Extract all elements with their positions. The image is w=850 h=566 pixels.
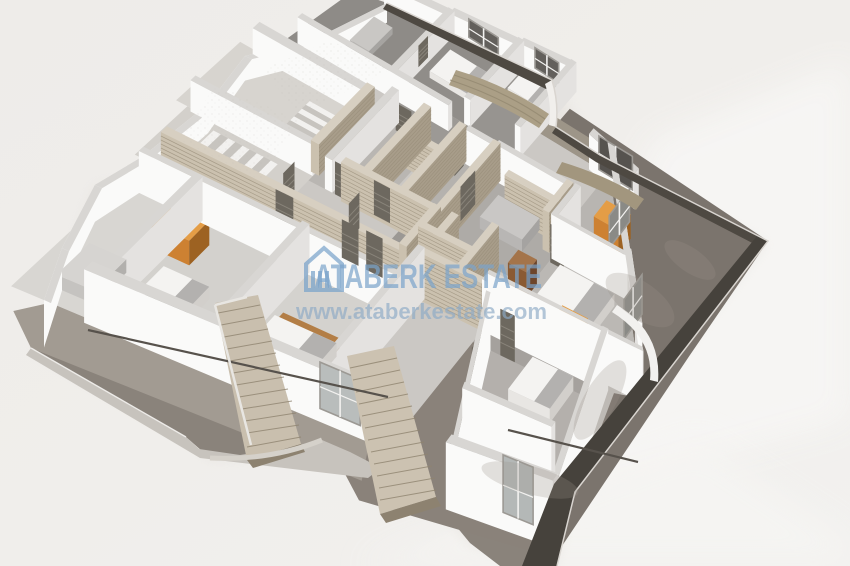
svg-text:ATABERK ESTATE: ATABERK ESTATE	[314, 258, 542, 296]
svg-text:www.ataberkestate.com: www.ataberkestate.com	[295, 299, 547, 324]
